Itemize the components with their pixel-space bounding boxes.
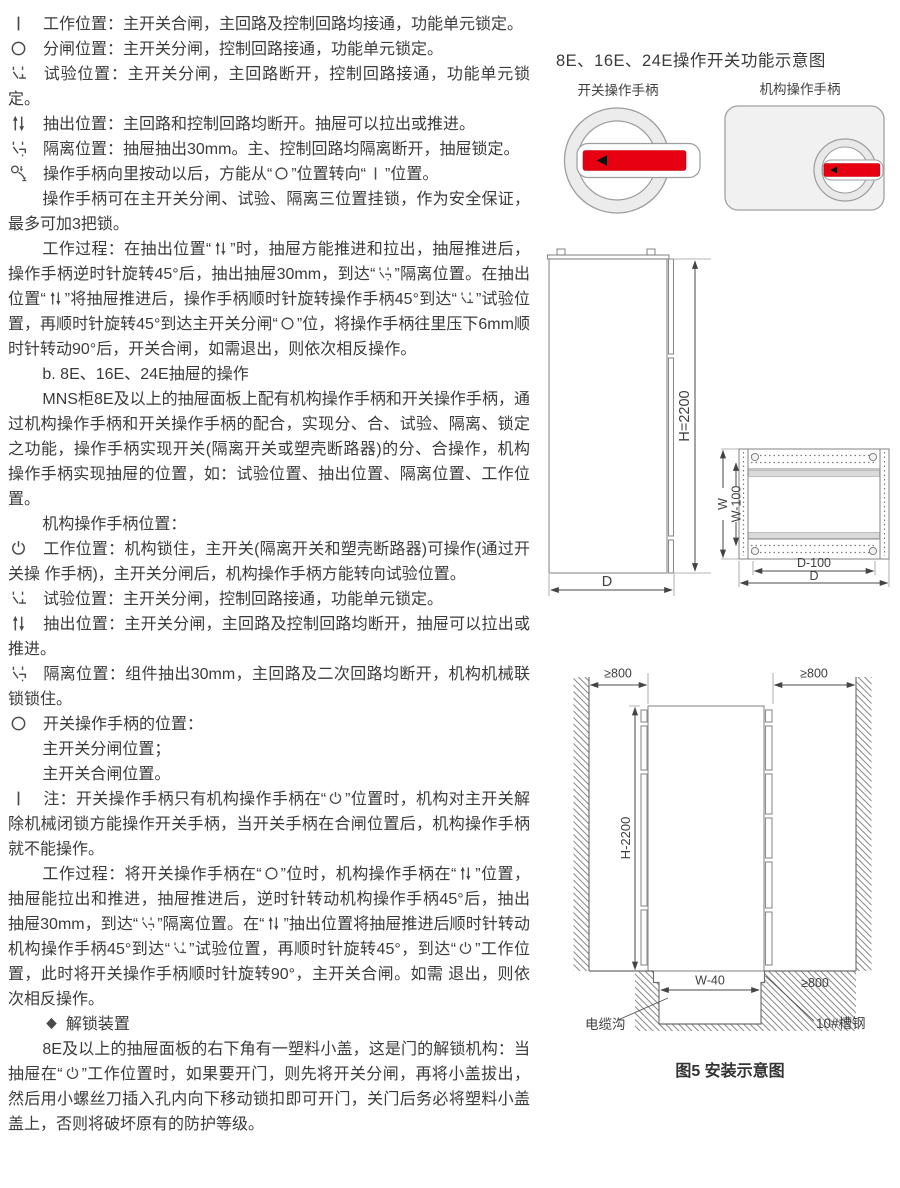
withdraw-position-icon (48, 291, 63, 306)
width-minus-100-dim-label: W-100 (730, 486, 744, 523)
work-process-a: 工作过程：在抽出位置“”时，抽屉方能推进和拉出，抽屉推进后，操作手柄逆时针旋转4… (8, 237, 530, 362)
open-position-item: 分闸位置：主开关分闸，控制回路接通，功能单元锁定。 (8, 37, 530, 62)
corner-screw-icon (751, 547, 758, 554)
withdraw-position-icon (458, 866, 473, 881)
handle-press-icon (8, 165, 29, 182)
cabinet-dimension-diagram: H=2200 D W W-100 D-100 D (535, 240, 900, 600)
cabinet-front-view (548, 249, 674, 573)
manual-page: { "colors": { "red": "#e60012", "line": … (0, 0, 900, 1188)
channel-steel-label: 10#槽钢 (816, 1016, 866, 1031)
mech-isolation-position-item: 隔离位置：组件抽出30mm，主回路及二次回路均断开，机构机械联锁锁住。 (8, 662, 530, 712)
mech-withdraw-position-item: 抽出位置：主开关分闸，主回路及控制回路均断开，抽屉可以拉出或推进。 (8, 612, 530, 662)
isolation-position-icon (8, 665, 29, 682)
right-clearance-dim-label: ≥800 (800, 667, 828, 681)
isolation-position-icon (140, 916, 155, 931)
left-clearance-dim-label: ≥800 (604, 667, 632, 681)
test-position-icon (172, 941, 187, 956)
mech-work-position-item: 工作位置：机构锁住，主开关(隔离开关和塑壳断路器)可操作(通过开关操 作手柄)，… (8, 537, 530, 587)
unlock-device-para: 8E及以上的抽屉面板的右下角有一塑料小盖，这是门的解锁机构：当抽屉在“”工作位置… (8, 1037, 530, 1137)
test-position-icon (8, 590, 29, 607)
power-position-icon (65, 1066, 80, 1081)
left-wall-hatch (574, 677, 590, 971)
power-position-icon (8, 540, 29, 557)
off-position-icon (8, 715, 29, 732)
withdraw-position-item: 抽出位置：主回路和控制回路均断开。抽屉可以拉出或推进。 (8, 112, 530, 137)
height-dim-label: H=2200 (677, 390, 693, 441)
switch-close-line: 主开关合闸位置。 (8, 762, 530, 787)
withdraw-position-icon (266, 916, 281, 931)
plan-depth-dim-label: D (809, 569, 818, 583)
installation-diagram: ≥800 ≥800 H-2200 W-40 ≥800 电缆沟 10#槽钢 (555, 660, 890, 1052)
off-position-icon (274, 166, 289, 181)
power-position-icon (328, 791, 343, 806)
trench-width-dim-label: W-40 (695, 974, 725, 988)
mns-intro: MNS柜8E及以上的抽屉面板上配有机构操作手柄和开关操作手柄，通过机构操作手柄和… (8, 387, 530, 512)
work-process-b: 工作过程：将开关操作手柄在“”位时，机构操作手柄在“”位置，抽屉能拉出和推进，抽… (8, 862, 530, 1012)
isolation-position-item: 隔离位置：抽屉抽出30mm。主、控制回路均隔离断开，抽屉锁定。 (8, 137, 530, 162)
diamond-icon (44, 1016, 59, 1031)
power-position-icon (458, 941, 473, 956)
figure-title: 8E、16E、24E操作开关功能示意图 (556, 47, 826, 71)
work-position-icon (8, 790, 29, 807)
handle-press-note: 操作手柄向里按动以后，方能从“”位置转向“”位置。 (8, 162, 530, 187)
width-dim-label: W (716, 498, 730, 510)
lifting-lug-icon (557, 249, 565, 255)
install-height-dim-label: H-2200 (618, 817, 633, 860)
cable-trench-label: 电缆沟 (585, 1017, 626, 1032)
mech-handle-positions-heading: 机构操作手柄位置： (8, 512, 530, 537)
test-position-icon (459, 291, 474, 306)
isolation-position-icon (8, 140, 29, 157)
work-position-icon (368, 166, 383, 181)
mech-test-position-item: 试验位置：主开关分闸，控制回路接通，功能单元锁定。 (8, 587, 530, 612)
isolation-position-icon (377, 266, 392, 281)
unlock-device-heading: 解锁装置 (8, 1012, 530, 1037)
off-position-icon (8, 40, 29, 57)
depth-minus-100-dim-label: D-100 (797, 556, 831, 570)
instruction-text-column: 工作位置：主开关合闸，主回路及控制回路均接通，功能单元锁定。分闸位置：主开关分闸… (8, 12, 530, 1137)
corner-screw-icon (869, 547, 876, 554)
figure5-caption: 图5 安装示意图 (630, 1057, 830, 1081)
switch-handle-positions-heading: 开关操作手柄的位置： (8, 712, 530, 737)
work-position-icon (8, 15, 29, 32)
padlock-note: 操作手柄可在主开关分闸、试验、隔离三位置挂锁，作为安全保证，最多可加3把锁。 (8, 187, 530, 237)
test-position-item: 试验位置：主开关分闸，主回路断开，控制回路接通，功能单元锁定。 (8, 62, 530, 112)
test-position-icon (8, 65, 29, 82)
right-wall-hatch (856, 677, 872, 971)
mechanism-operating-handle (725, 106, 884, 210)
withdraw-position-icon (8, 115, 29, 132)
off-position-icon (264, 866, 279, 881)
corner-screw-icon (751, 453, 758, 460)
off-position-icon (280, 316, 295, 331)
switch-open-line: 主开关分闸位置； (8, 737, 530, 762)
corner-screw-icon (869, 453, 876, 460)
depth-dim-label: D (602, 574, 612, 590)
withdraw-position-icon (8, 615, 29, 632)
cabinet-side-view (641, 706, 772, 971)
work-position-item: 工作位置：主开关合闸，主回路及控制回路均接通，功能单元锁定。 (8, 12, 530, 37)
rear-clearance-dim-label: ≥800 (801, 976, 829, 990)
note-item: 注：开关操作手柄只有机构操作手柄在“”位置时，机构对主开关解除机械闭锁方能操作开… (8, 787, 530, 862)
section-b-heading: b. 8E、16E、24E抽屉的操作 (8, 362, 530, 387)
mech-handle-label: 机构操作手柄 (760, 82, 841, 97)
right-side-rail (766, 710, 773, 965)
lifting-lug-icon (647, 249, 655, 255)
cabinet-top-view (739, 449, 889, 559)
switch-operating-handle (565, 108, 701, 213)
withdraw-position-icon (213, 241, 228, 256)
switch-handle-label: 开关操作手柄 (578, 83, 659, 98)
left-side-rail (641, 710, 647, 965)
operation-handles-diagram: 开关操作手柄 机构操作手柄 (540, 78, 900, 228)
